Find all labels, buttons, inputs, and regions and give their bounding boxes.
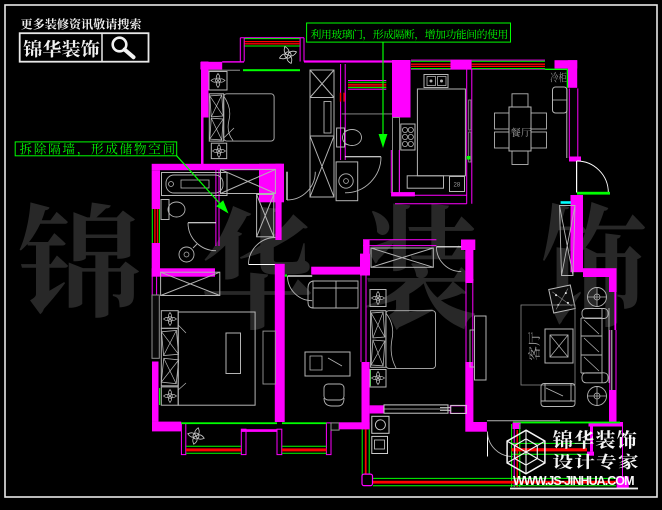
svg-text:28: 28 <box>454 183 461 189</box>
svg-text:WWW.JS-JINHUA.COM: WWW.JS-JINHUA.COM <box>513 474 635 488</box>
